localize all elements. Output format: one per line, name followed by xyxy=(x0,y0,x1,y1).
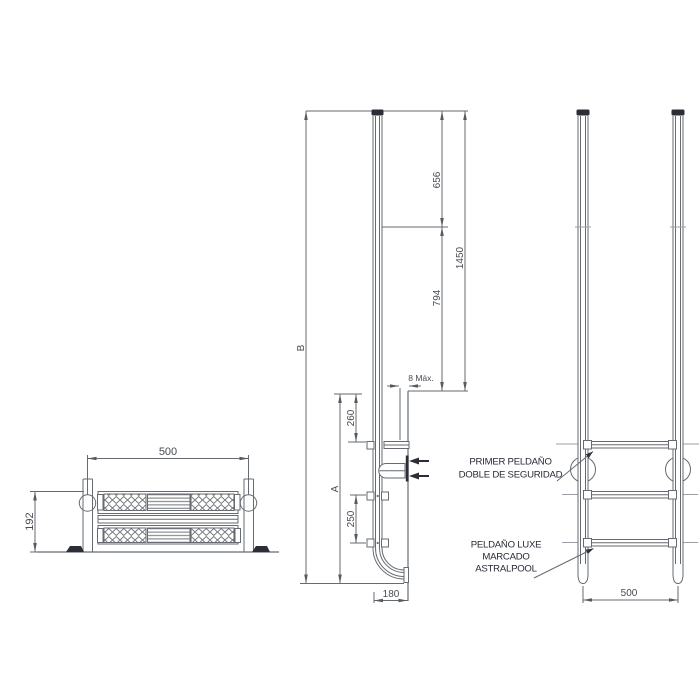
base-flange xyxy=(404,568,409,583)
front-rungs xyxy=(584,441,677,548)
dim-text-step-spacing: 250 xyxy=(346,510,357,527)
tread-diamond xyxy=(104,494,146,511)
side-safety-step xyxy=(379,464,405,479)
callout-luxe-step-line3: ASTRALPOOL xyxy=(475,564,537,575)
tread-diamond xyxy=(191,528,234,543)
tube-cap xyxy=(372,110,384,116)
front-view xyxy=(534,110,699,604)
anchor-arrow-icon xyxy=(409,473,419,480)
tread-diamond xyxy=(104,528,146,543)
front-ladder-tubes xyxy=(575,110,686,584)
dim-text-plan-width: 500 xyxy=(159,446,177,458)
side-wall-anchor-bracket xyxy=(406,456,429,482)
tube-cap xyxy=(672,110,685,116)
side-ladder-tube xyxy=(372,110,409,583)
tread-diamond xyxy=(191,494,234,511)
dim-text-front-width: 500 xyxy=(621,588,638,599)
dim-text-waterline-to-deck: 794 xyxy=(432,289,443,306)
ladder-technical-drawing: 500 192 B A 260 250 656 794 1450 8 Máx. … xyxy=(0,0,700,700)
dim-text-wall-clearance: 8 Máx. xyxy=(408,373,434,383)
side-first-rung xyxy=(367,442,409,450)
dim-text-top-to-deck: 1450 xyxy=(455,246,466,269)
callout-first-step-line1: PRIMER PELDAÑO xyxy=(469,457,551,468)
callout-luxe-step-line2: MARCADO xyxy=(482,552,529,563)
dim-text-top-to-waterline: 656 xyxy=(432,171,443,188)
tube-cap xyxy=(577,110,590,116)
plan-step-assembly xyxy=(98,492,241,545)
dim-text-plan-depth: 192 xyxy=(24,512,36,530)
callout-first-step-line2: DOBLE DE SEGURIDAD xyxy=(459,470,563,481)
callout-luxe-step-line1: PELDAÑO LUXE xyxy=(471,540,542,551)
tread-striped xyxy=(148,494,191,511)
side-step-clips xyxy=(367,492,389,547)
anchor-arrow-icon xyxy=(409,458,419,465)
dim-text-overall-B: B xyxy=(296,344,307,351)
dim-text-submerged-A: A xyxy=(330,485,341,492)
plan-view xyxy=(30,455,279,552)
callout-first-step: PRIMER PELDAÑO DOBLE DE SEGURIDAD xyxy=(459,457,563,481)
dim-text-deck-to-first-step: 260 xyxy=(346,409,357,426)
plan-wall-anchors xyxy=(66,546,270,552)
callout-luxe-step: PELDAÑO LUXE MARCADO ASTRALPOOL xyxy=(471,540,542,575)
dim-text-base-reach: 180 xyxy=(383,589,400,600)
tread-striped xyxy=(148,528,191,543)
